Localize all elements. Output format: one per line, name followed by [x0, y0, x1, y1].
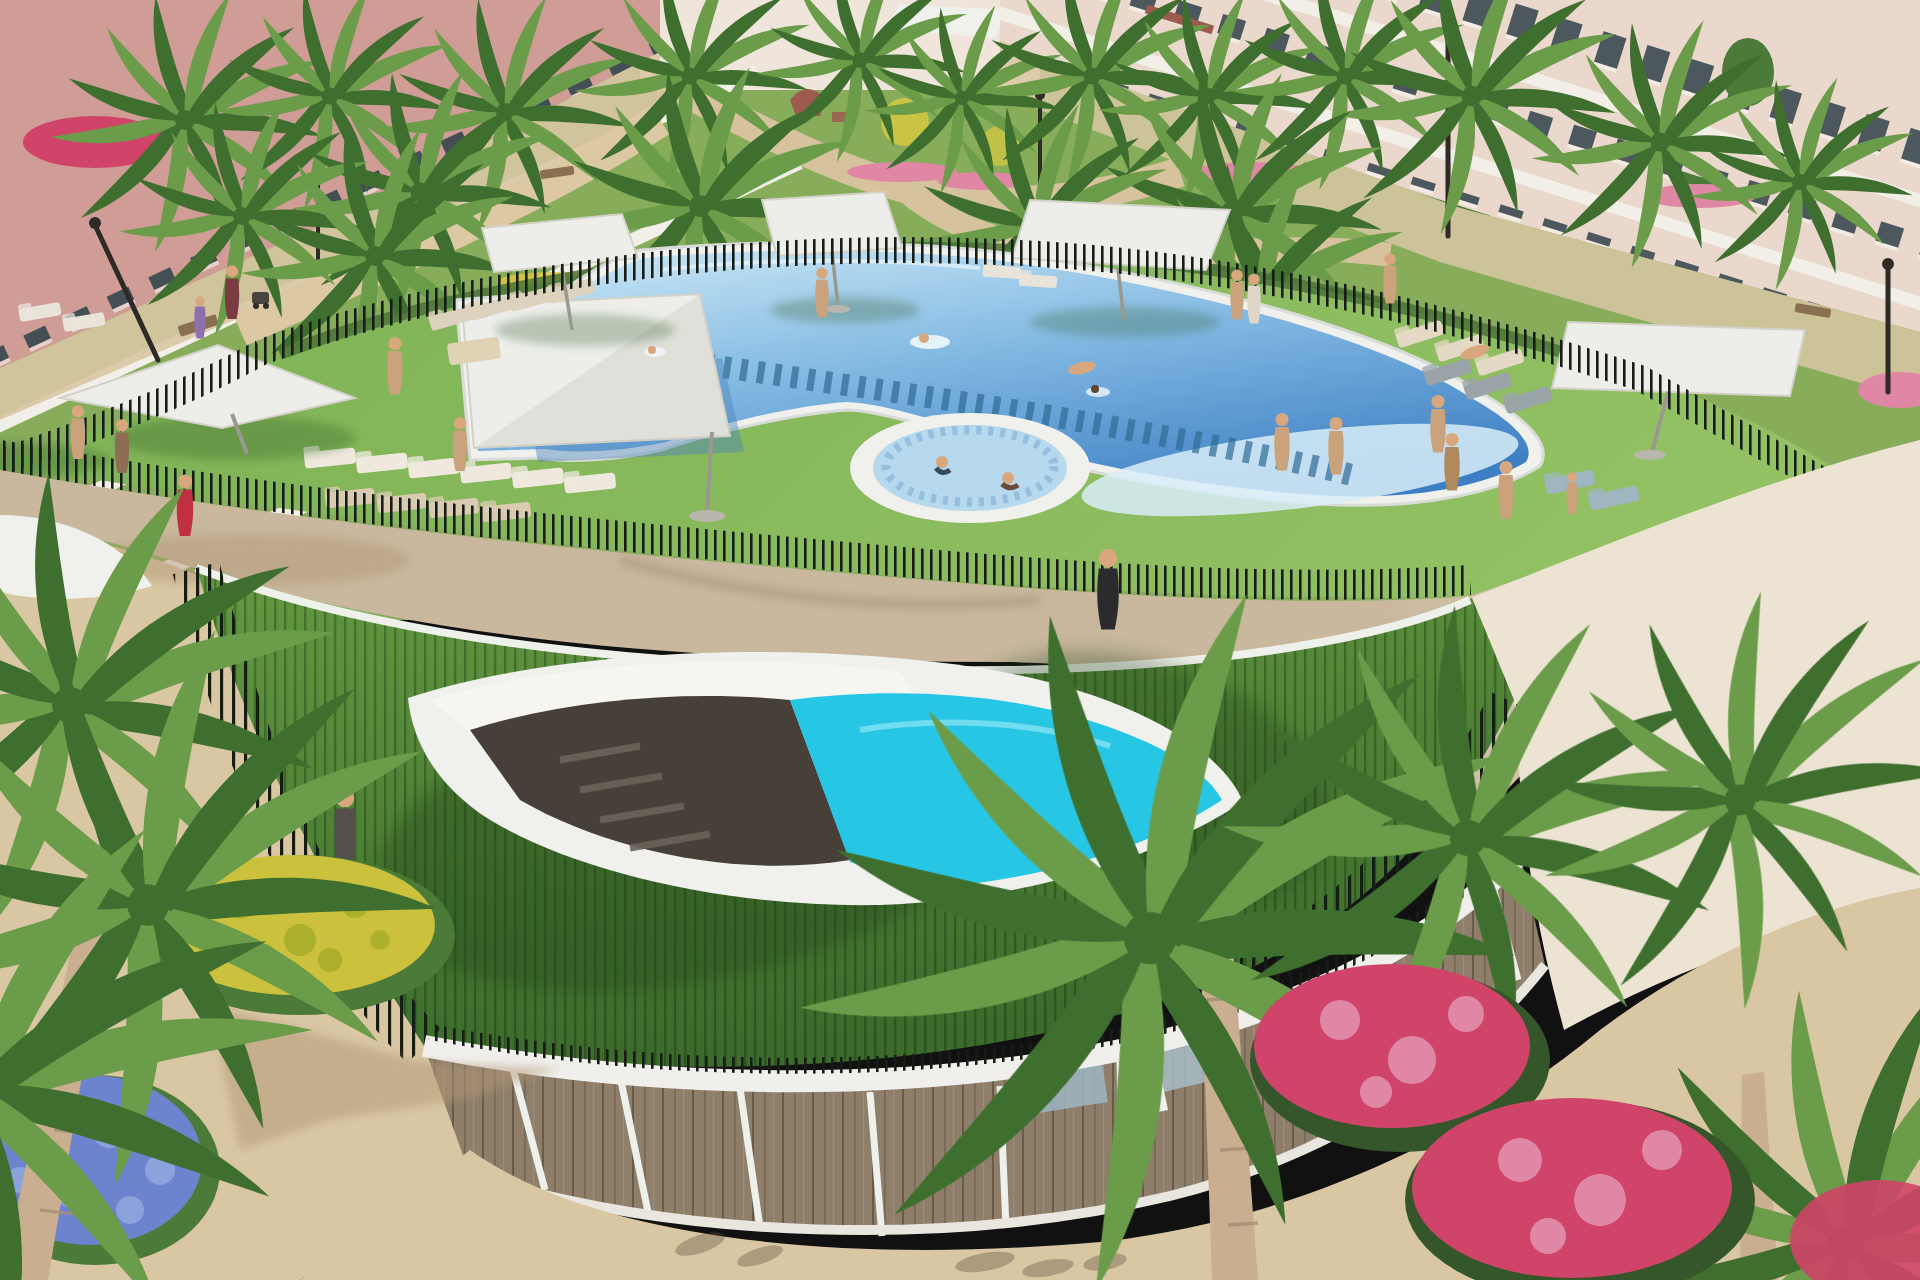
kids-pool	[850, 413, 1090, 523]
parasol-base	[826, 305, 850, 313]
stroller	[252, 292, 269, 304]
rendered-image	[0, 0, 1920, 1280]
pink-flower-bed	[1254, 964, 1530, 1128]
resort-aerial-render	[0, 0, 1920, 1280]
bather-head	[1002, 472, 1014, 484]
parasol-base	[1634, 450, 1666, 460]
bather-head	[936, 456, 948, 468]
pink-flower-bed	[1412, 1098, 1732, 1278]
parasol-base	[689, 510, 725, 522]
